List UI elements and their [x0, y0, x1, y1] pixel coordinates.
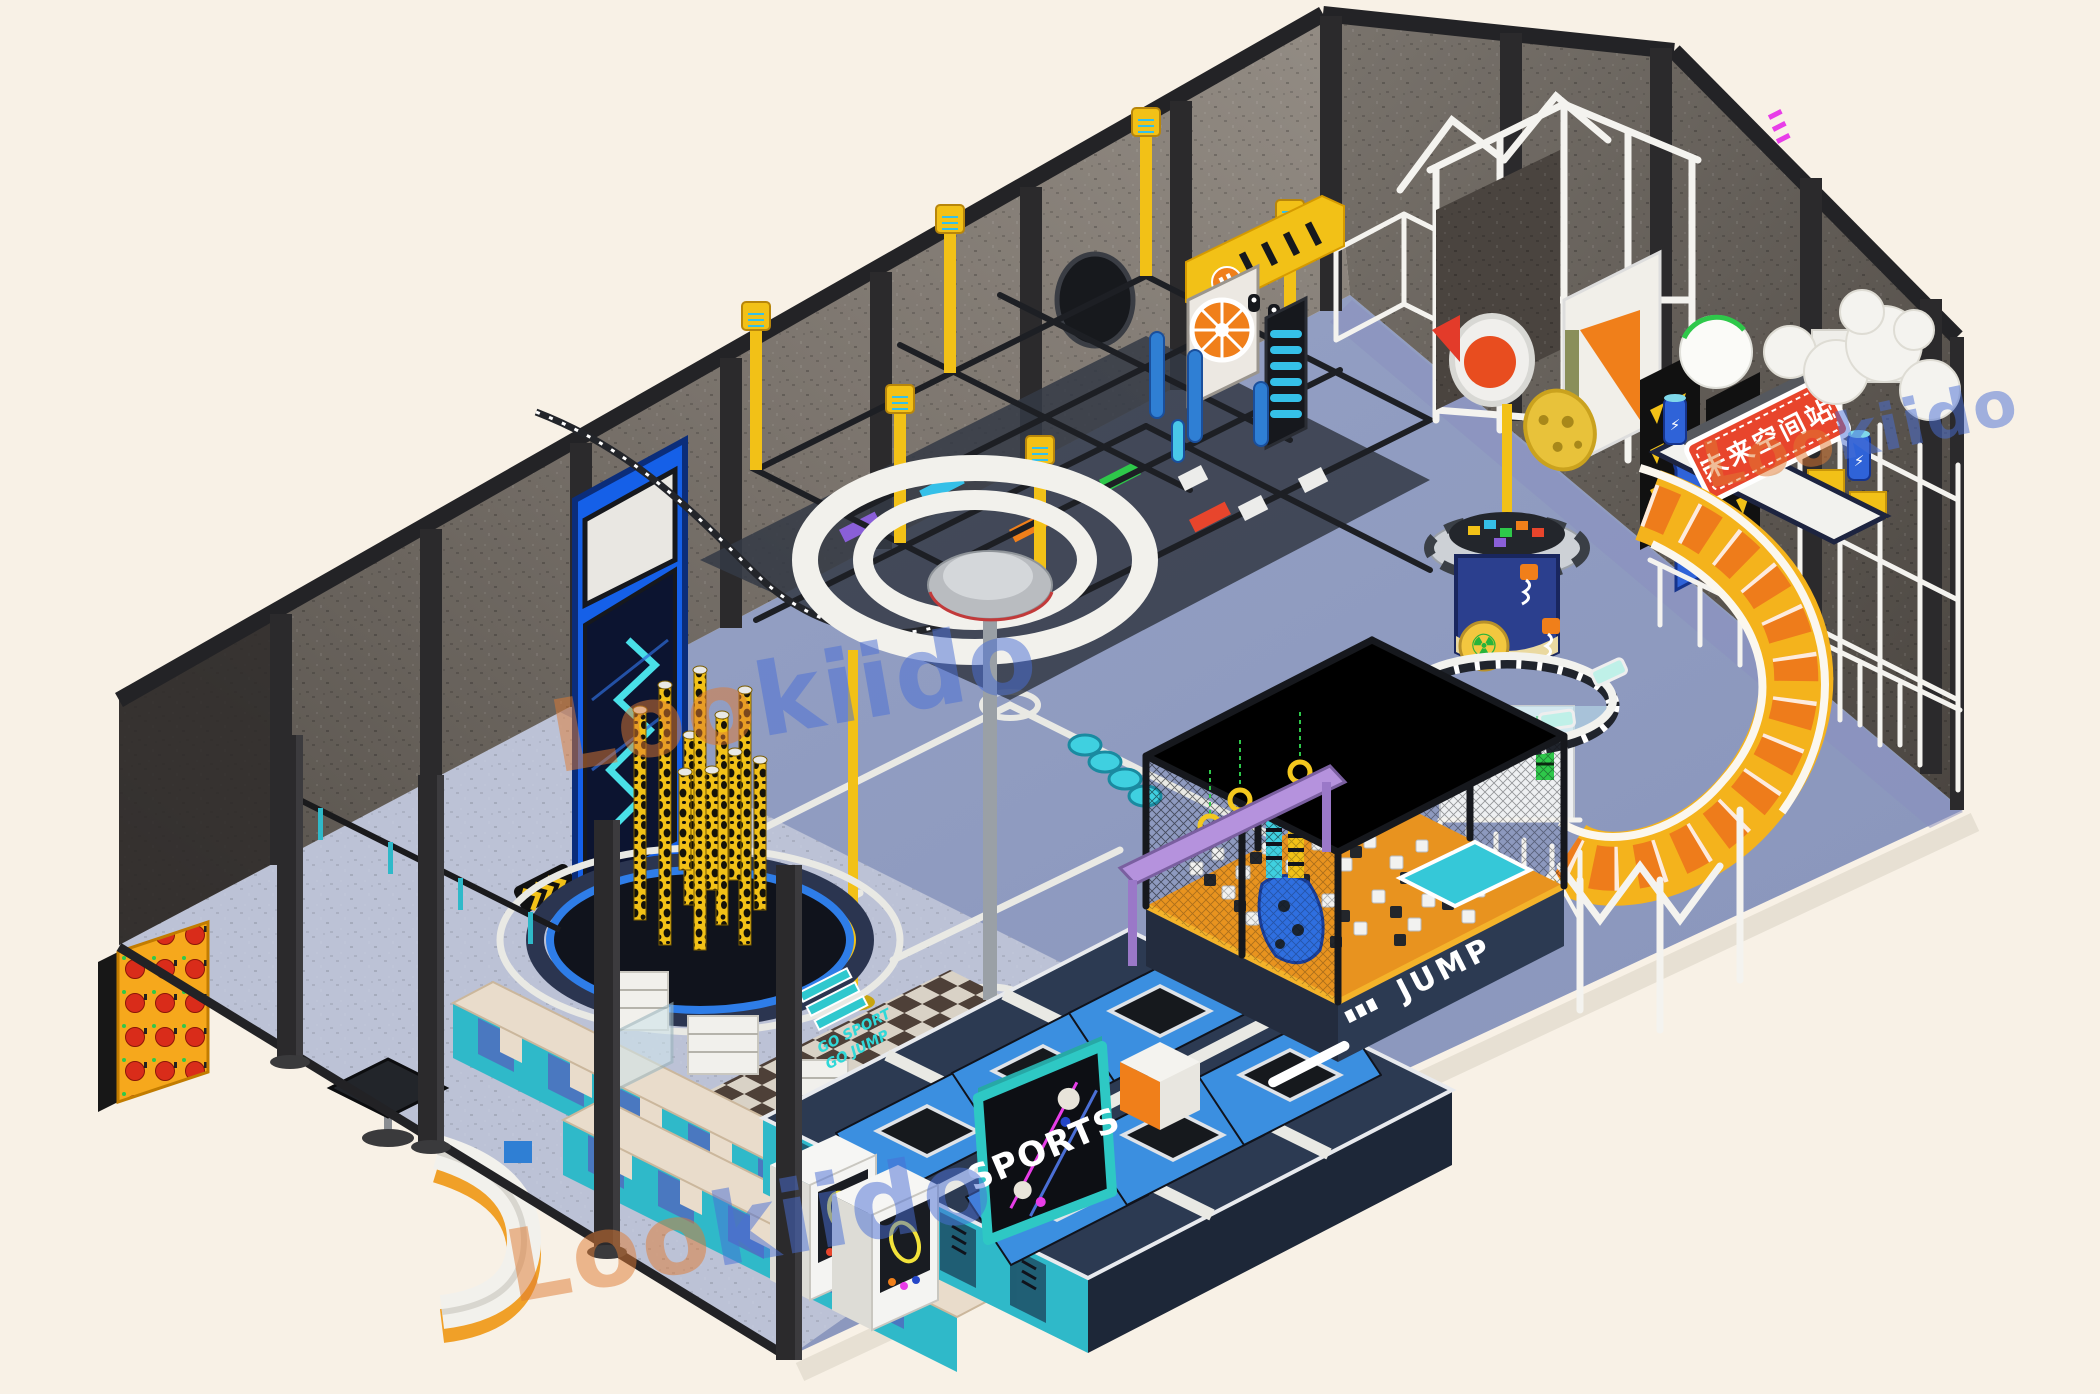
slat-panel — [1266, 298, 1306, 448]
battery-pillar-left: ⚡ — [1664, 394, 1686, 444]
green-ring-sphere — [1680, 316, 1752, 388]
punch-wall-game — [98, 922, 208, 1112]
lightning-icon: ⚡ — [1670, 416, 1681, 434]
isometric-park-render: 머 未来空间站 ⚡ ⚡ — [0, 0, 2100, 1394]
orange-wheel — [1192, 300, 1252, 360]
scene-canvas: 머 未来空间站 ⚡ ⚡ — [0, 0, 2100, 1394]
wall-menu-board — [504, 1141, 532, 1163]
